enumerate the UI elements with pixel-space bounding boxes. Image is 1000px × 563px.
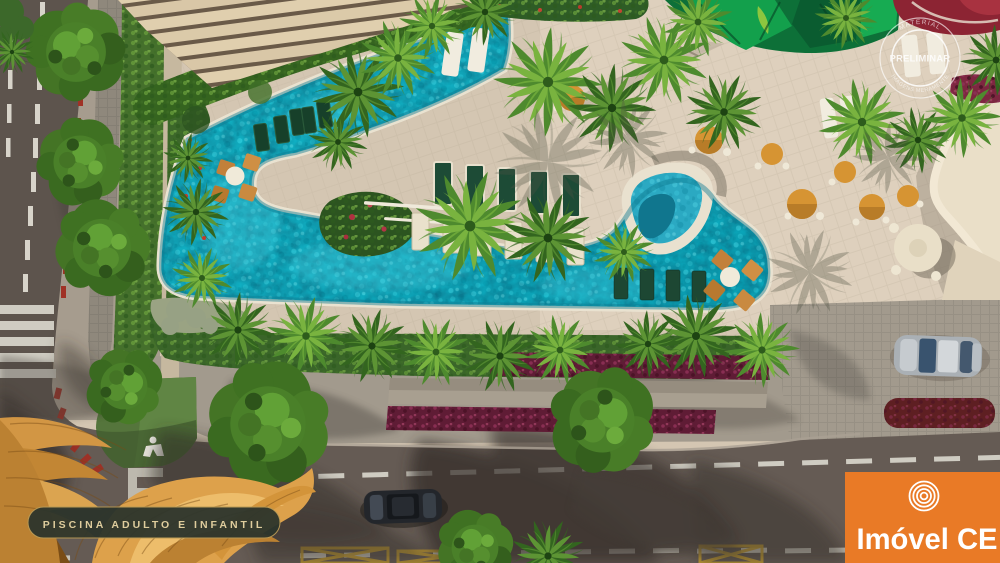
svg-text:Imóvel CE: Imóvel CE — [857, 523, 998, 556]
svg-text:PRELIMINAR: PRELIMINAR — [890, 54, 951, 64]
svg-text:PISCINA ADULTO E INFANTIL: PISCINA ADULTO E INFANTIL — [43, 519, 266, 531]
